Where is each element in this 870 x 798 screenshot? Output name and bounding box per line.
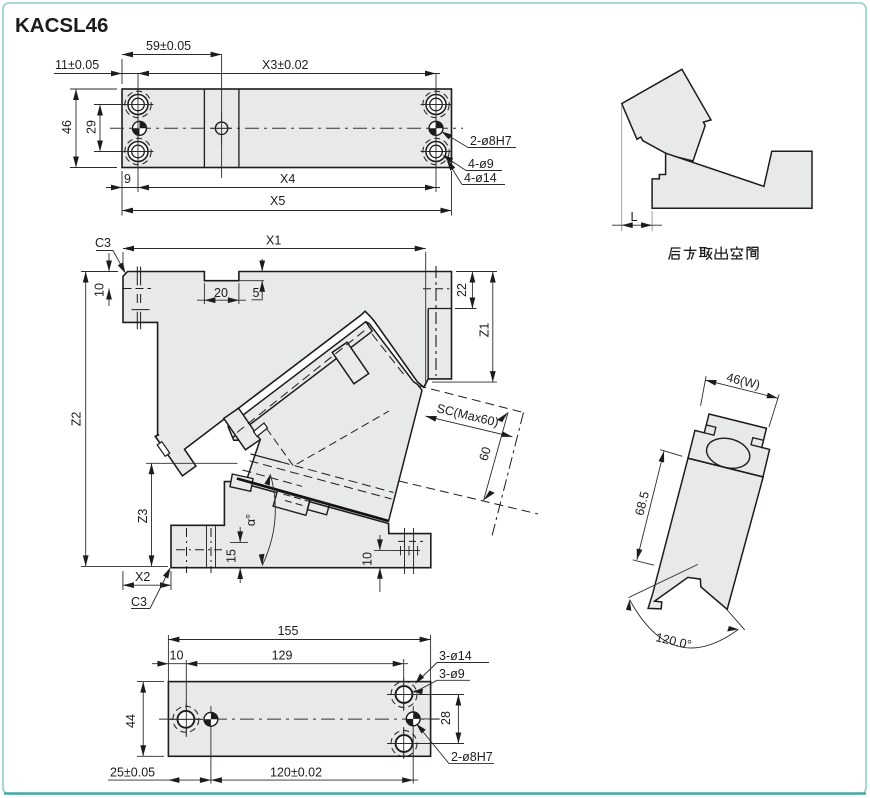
svg-text:X1: X1 xyxy=(266,234,281,248)
svg-text:15: 15 xyxy=(225,549,239,563)
svg-text:10: 10 xyxy=(361,552,375,566)
svg-text:Z1: Z1 xyxy=(478,323,492,338)
svg-text:L: L xyxy=(631,210,638,224)
svg-text:X5: X5 xyxy=(270,194,285,208)
svg-text:5: 5 xyxy=(253,286,260,300)
svg-text:4-ø14: 4-ø14 xyxy=(464,171,497,185)
svg-text:129: 129 xyxy=(272,649,293,663)
svg-text:59±0.05: 59±0.05 xyxy=(146,39,191,53)
svg-text:25±0.05: 25±0.05 xyxy=(110,766,155,780)
svg-text:2-ø8H7: 2-ø8H7 xyxy=(451,750,493,764)
svg-text:29: 29 xyxy=(85,120,99,134)
svg-text:120.0°: 120.0° xyxy=(654,630,693,652)
svg-text:Z2: Z2 xyxy=(70,412,84,427)
svg-text:4-ø9: 4-ø9 xyxy=(468,157,494,171)
svg-text:11±0.05: 11±0.05 xyxy=(55,58,99,72)
svg-text:120±0.02: 120±0.02 xyxy=(270,766,322,780)
svg-text:C3: C3 xyxy=(95,236,111,250)
svg-text:SC(Max60): SC(Max60) xyxy=(435,401,500,429)
svg-text:C3: C3 xyxy=(131,595,147,609)
svg-text:KACSL46: KACSL46 xyxy=(15,14,108,37)
svg-text:60: 60 xyxy=(477,445,494,462)
svg-text:2-ø8H7: 2-ø8H7 xyxy=(470,134,512,148)
svg-text:α°: α° xyxy=(244,514,258,526)
svg-text:X2: X2 xyxy=(135,570,150,584)
svg-text:10: 10 xyxy=(170,649,184,663)
svg-text:10: 10 xyxy=(93,283,107,297)
svg-text:155: 155 xyxy=(278,624,299,638)
svg-text:Z3: Z3 xyxy=(136,509,150,524)
svg-text:9: 9 xyxy=(124,172,131,186)
svg-text:3-ø9: 3-ø9 xyxy=(439,667,465,681)
svg-text:22: 22 xyxy=(455,283,469,297)
svg-text:X3±0.02: X3±0.02 xyxy=(262,58,309,72)
svg-text:44: 44 xyxy=(124,714,138,728)
svg-text:46(W): 46(W) xyxy=(725,370,761,392)
svg-text:3-ø14: 3-ø14 xyxy=(439,649,472,663)
svg-text:X4: X4 xyxy=(280,172,295,186)
svg-text:20: 20 xyxy=(214,286,228,300)
svg-text:28: 28 xyxy=(439,711,453,725)
svg-text:46: 46 xyxy=(60,120,74,134)
